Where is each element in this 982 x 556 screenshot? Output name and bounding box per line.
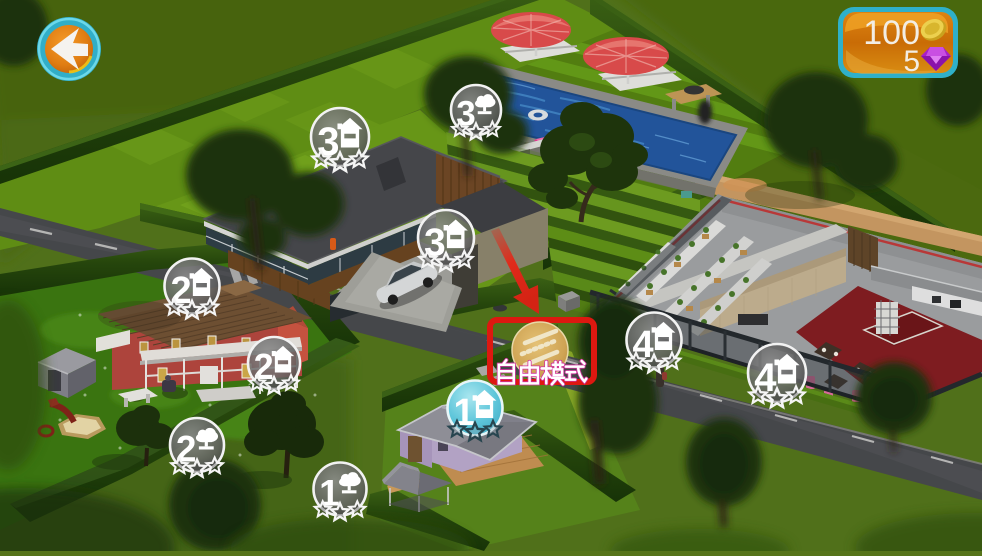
svg-text:5: 5 [903, 45, 920, 78]
